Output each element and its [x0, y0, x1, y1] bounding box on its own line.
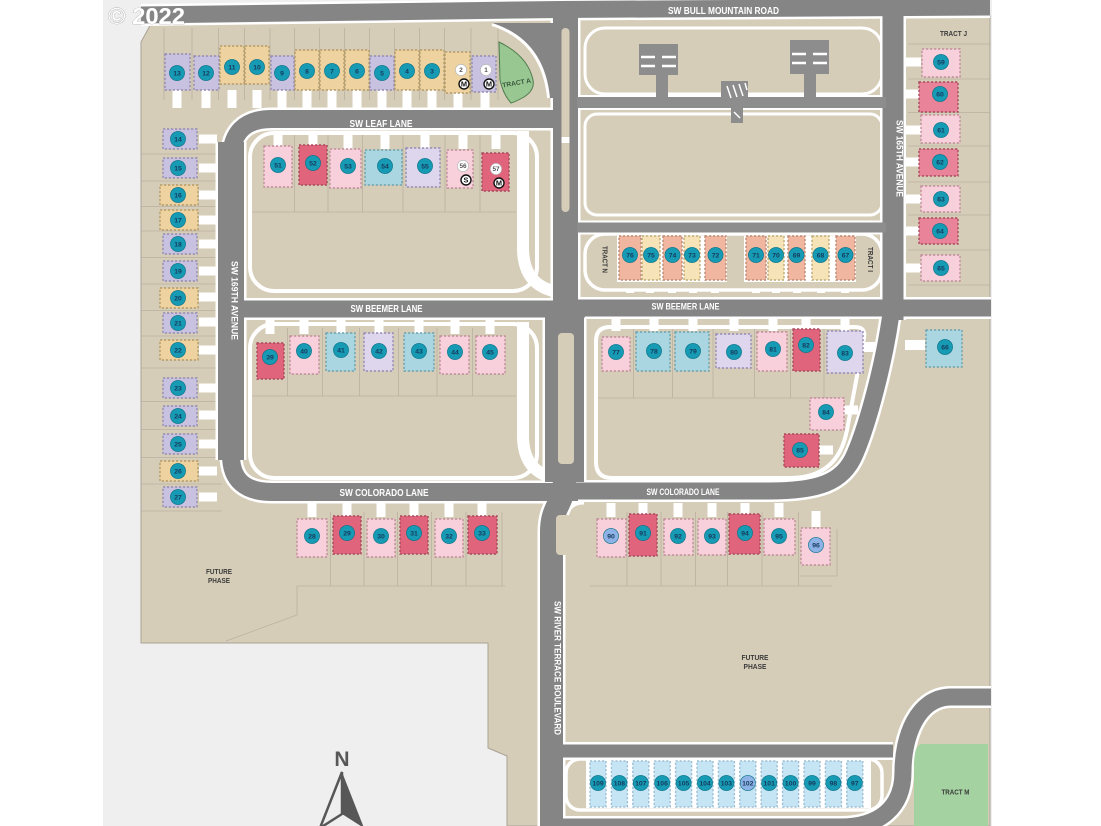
svg-text:18: 18 — [174, 241, 182, 248]
svg-text:73: 73 — [688, 252, 696, 259]
svg-text:13: 13 — [173, 70, 181, 77]
svg-text:1: 1 — [484, 67, 488, 74]
svg-text:19: 19 — [174, 268, 182, 275]
svg-text:16: 16 — [174, 192, 182, 199]
svg-text:108: 108 — [614, 780, 626, 787]
svg-text:72: 72 — [712, 252, 720, 259]
svg-text:42: 42 — [375, 348, 383, 355]
svg-text:105: 105 — [678, 780, 690, 787]
svg-text:63: 63 — [937, 196, 945, 203]
svg-text:SW BEEMER LANE: SW BEEMER LANE — [351, 304, 423, 315]
svg-text:3: 3 — [430, 68, 434, 75]
svg-text:7: 7 — [330, 68, 334, 75]
svg-text:93: 93 — [708, 533, 716, 540]
svg-text:SW LEAF LANE: SW LEAF LANE — [350, 119, 413, 130]
svg-text:54: 54 — [381, 163, 389, 170]
svg-text:71: 71 — [752, 252, 760, 259]
svg-text:SW COLORADO LANE: SW COLORADO LANE — [340, 488, 429, 499]
svg-text:95: 95 — [775, 533, 783, 540]
svg-text:81: 81 — [769, 346, 777, 353]
svg-text:SW BULL MOUNTAIN ROAD: SW BULL MOUNTAIN ROAD — [668, 6, 779, 17]
svg-text:41: 41 — [337, 347, 345, 354]
svg-text:84: 84 — [822, 409, 830, 416]
svg-text:12: 12 — [202, 70, 210, 77]
svg-text:PHASE: PHASE — [744, 662, 767, 671]
svg-text:69: 69 — [793, 252, 801, 259]
svg-text:5: 5 — [380, 70, 384, 77]
svg-text:91: 91 — [639, 530, 647, 537]
svg-text:15: 15 — [174, 165, 182, 172]
svg-text:SW COLORADO LANE: SW COLORADO LANE — [647, 487, 720, 497]
svg-text:62: 62 — [936, 159, 944, 166]
svg-text:6: 6 — [355, 68, 359, 75]
svg-text:M: M — [496, 179, 502, 188]
svg-text:68: 68 — [817, 252, 825, 259]
svg-text:44: 44 — [451, 349, 459, 356]
svg-text:102: 102 — [742, 780, 754, 787]
svg-text:52: 52 — [309, 160, 317, 167]
svg-text:80: 80 — [730, 349, 738, 356]
svg-text:104: 104 — [699, 780, 711, 787]
svg-text:40: 40 — [300, 348, 308, 355]
svg-text:43: 43 — [415, 348, 423, 355]
svg-text:TRACT J: TRACT J — [940, 31, 967, 38]
svg-text:4: 4 — [405, 68, 409, 75]
svg-text:22: 22 — [174, 347, 182, 354]
svg-text:9: 9 — [280, 70, 284, 77]
svg-text:N: N — [334, 748, 349, 771]
svg-text:32: 32 — [445, 533, 453, 540]
svg-text:77: 77 — [612, 349, 620, 356]
svg-text:26: 26 — [174, 468, 182, 475]
svg-text:99: 99 — [808, 780, 816, 787]
svg-text:TRACT M: TRACT M — [942, 790, 970, 797]
svg-text:M: M — [486, 80, 492, 89]
svg-text:17: 17 — [174, 217, 182, 224]
svg-text:11: 11 — [228, 64, 235, 71]
svg-text:109: 109 — [592, 780, 604, 787]
svg-text:M: M — [461, 80, 467, 89]
svg-text:23: 23 — [174, 385, 182, 392]
svg-text:39: 39 — [266, 354, 274, 361]
svg-text:67: 67 — [842, 252, 850, 259]
svg-text:SW BEEMER LANE: SW BEEMER LANE — [652, 302, 720, 312]
svg-text:65: 65 — [937, 265, 945, 272]
svg-text:14: 14 — [174, 136, 182, 143]
svg-text:100: 100 — [785, 780, 797, 787]
svg-text:75: 75 — [647, 252, 655, 259]
svg-text:94: 94 — [741, 530, 749, 537]
svg-text:2: 2 — [459, 67, 463, 74]
svg-text:59: 59 — [937, 59, 945, 66]
svg-text:24: 24 — [174, 413, 182, 420]
svg-text:28: 28 — [308, 533, 316, 540]
svg-text:61: 61 — [937, 127, 945, 134]
svg-text:53: 53 — [344, 163, 352, 170]
svg-text:66: 66 — [941, 344, 949, 351]
svg-text:103: 103 — [721, 780, 733, 787]
svg-text:S: S — [464, 176, 469, 185]
svg-text:90: 90 — [607, 533, 615, 540]
svg-text:74: 74 — [669, 252, 677, 259]
svg-text:33: 33 — [478, 530, 486, 537]
svg-text:92: 92 — [674, 533, 682, 540]
svg-text:78: 78 — [650, 348, 658, 355]
svg-text:TRACT N: TRACT N — [601, 246, 608, 273]
svg-text:25: 25 — [174, 441, 182, 448]
svg-text:27: 27 — [174, 494, 182, 501]
svg-text:98: 98 — [830, 780, 838, 787]
svg-text:56: 56 — [459, 163, 467, 170]
svg-text:FUTURE: FUTURE — [742, 653, 769, 662]
svg-text:83: 83 — [841, 350, 849, 357]
svg-text:10: 10 — [253, 64, 261, 71]
svg-text:SW RIVER TERRACE BOULEVARD: SW RIVER TERRACE BOULEVARD — [553, 601, 563, 735]
svg-text:51: 51 — [274, 162, 282, 169]
svg-text:45: 45 — [486, 349, 494, 356]
svg-text:31: 31 — [410, 530, 418, 537]
svg-text:29: 29 — [343, 530, 351, 537]
svg-text:64: 64 — [936, 228, 944, 235]
svg-text:82: 82 — [802, 342, 810, 349]
svg-text:85: 85 — [796, 447, 804, 454]
svg-text:76: 76 — [626, 252, 634, 259]
svg-text:20: 20 — [174, 295, 182, 302]
svg-text:21: 21 — [174, 320, 182, 327]
svg-text:97: 97 — [851, 780, 859, 787]
svg-text:70: 70 — [772, 252, 780, 259]
svg-text:79: 79 — [689, 348, 697, 355]
svg-text:57: 57 — [492, 166, 500, 173]
svg-text:106: 106 — [657, 780, 669, 787]
svg-text:96: 96 — [812, 542, 820, 549]
svg-text:SW 169TH AVENUE: SW 169TH AVENUE — [229, 261, 240, 340]
svg-text:TRACT I: TRACT I — [866, 247, 873, 272]
svg-text:55: 55 — [421, 163, 429, 170]
svg-text:101: 101 — [764, 780, 776, 787]
svg-text:SW 165TH AVENUE: SW 165TH AVENUE — [894, 120, 905, 197]
svg-text:FUTURE: FUTURE — [206, 567, 232, 576]
svg-text:30: 30 — [377, 533, 385, 540]
svg-text:PHASE: PHASE — [208, 576, 230, 585]
svg-text:© 2022: © 2022 — [108, 3, 185, 29]
svg-text:60: 60 — [936, 91, 944, 98]
svg-text:8: 8 — [305, 68, 309, 75]
svg-text:107: 107 — [635, 780, 647, 787]
